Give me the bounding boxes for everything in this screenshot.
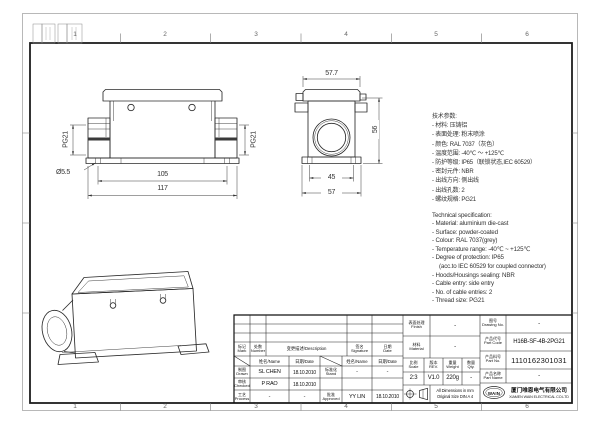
row-process-label: 工艺 Process	[234, 393, 250, 402]
checked-date: 18.10.2010	[289, 382, 320, 388]
zone-number-bottom: 5	[426, 403, 446, 410]
company-name-en: XIAMEN WAIN ELECTRICAL CO.LTD	[506, 395, 572, 399]
material-label: 材料 Material	[403, 343, 430, 352]
iso-guide-pin	[160, 298, 166, 304]
spec-line: (acc.to IEC 60529 for coupled connector)	[432, 263, 546, 272]
side-dimensions	[302, 76, 383, 197]
row-standard-label: 标准化 Stand	[320, 368, 342, 377]
zone-number-top: 4	[336, 31, 356, 38]
th-mark: 标记 Mark	[234, 345, 250, 354]
sh-date2: 日期/Date	[372, 359, 403, 365]
rev-label: 版本 REV.	[424, 361, 443, 370]
th-description: 变更描述/Description	[266, 346, 347, 352]
part-name-en: Part Name	[480, 376, 506, 380]
row-drawn-label: 制图 Drawn	[234, 368, 250, 377]
approved-name: YY LIN	[342, 394, 372, 400]
first-angle-projection-symbol	[404, 388, 428, 399]
dim-label-57-7: 57.7	[316, 70, 347, 77]
spec-line: - Material: aluminium die-cast	[432, 220, 546, 229]
drawing-no-en: Drawing No.	[480, 323, 506, 327]
spec-line: - 密封元件: NBR	[432, 168, 536, 177]
base-flange	[86, 158, 239, 164]
finish-value: -	[430, 323, 480, 329]
engineering-drawing-sheet: { "zones": { "top": ["1","2","3","4","5"…	[0, 0, 600, 424]
th-date: 日期 Date	[372, 345, 403, 354]
spec-line: - Colour: RAL 7037(grey)	[432, 237, 546, 246]
approved-en: Approved	[320, 397, 342, 401]
approved-date: 18.10.2010	[372, 394, 403, 400]
note-line1: All Dimensions in mm	[430, 388, 480, 394]
zone-number-bottom: 4	[336, 403, 356, 410]
spec-line: - 出线孔数: 2	[432, 187, 536, 196]
zone-number-bottom: 3	[246, 403, 266, 410]
part-name-value: -	[506, 373, 572, 379]
drawn-en: Drawn	[234, 372, 250, 376]
note-line2: Original Size DIN A 4	[430, 394, 480, 400]
th-date-en: Date	[372, 349, 403, 353]
dim-label-pg21-left: PG21	[63, 126, 70, 154]
drawn-date: 18.10.2010	[289, 370, 320, 376]
th-mark-en: Mark	[234, 349, 250, 353]
th-number-en: Number	[250, 349, 266, 353]
spec-line: - 材料: 压铸铝	[432, 122, 536, 131]
zone-number-top: 2	[155, 31, 175, 38]
specs-english: Technical specification: - Material: alu…	[432, 212, 546, 307]
standard-en: Stand	[320, 372, 342, 376]
row-approved-label: 批准 Approved	[320, 393, 342, 402]
th-signature: 签名 Signature	[347, 345, 372, 354]
spec-line: - Thread size: PG21	[432, 297, 546, 306]
specs-chinese: 技术参数: - 材料: 压铸铝 - 表面处理: 粉末喷涂 - 颜色: RAL 7…	[432, 113, 536, 205]
spec-line: - 温度范围: -40℃ ～ +125℃	[432, 150, 536, 159]
dimension-notes: All Dimensions in mm Original Size DIN A…	[430, 388, 480, 399]
company-name-cn: 厦门唯恩电气有限公司	[506, 386, 572, 394]
checked-en: Checked	[234, 384, 250, 388]
qty-value: -	[462, 375, 480, 381]
qty-en: Qty.	[462, 365, 480, 369]
zone-number-top: 6	[517, 31, 537, 38]
iso-gland	[38, 307, 76, 355]
material-value: -	[430, 344, 480, 350]
process-name: -	[250, 394, 289, 400]
spec-line: - 表面处理: 粉末喷涂	[432, 131, 536, 140]
dim-label-hole-dia: Ø5.5	[56, 169, 86, 176]
process-en: Process	[234, 397, 250, 401]
scale-value: 2:3	[403, 375, 424, 381]
spec-line: - Hoods/Housings sealing: NBR	[432, 272, 546, 281]
zone-number-top: 1	[65, 31, 85, 38]
sh-name1: 姓名/Name	[250, 359, 289, 365]
screw-hole-left	[128, 104, 134, 110]
sh-date1: 日期/Date	[289, 359, 320, 365]
company-logo-text: WAIN	[484, 391, 504, 396]
part-no-value: 1110162301031	[506, 356, 572, 365]
weight-label: 重量 Weight	[443, 361, 462, 370]
zone-number-bottom: 1	[65, 403, 85, 410]
spec-line: - 出线方向: 侧出线	[432, 177, 536, 186]
spec-line: - Temperature range: -40℃ ~ +125℃	[432, 246, 546, 255]
spec-line: - Surface: powder-coated	[432, 229, 546, 238]
dim-label-pg21-right: PG21	[251, 126, 258, 154]
weight-value: 220g	[443, 375, 462, 381]
front-view	[70, 90, 249, 200]
zone-number-bottom: 6	[517, 403, 537, 410]
th-signature-en: Signature	[347, 349, 372, 353]
standard-date: -	[372, 369, 403, 375]
part-no-label: 产品料号 Part No.	[480, 355, 506, 364]
th-number: 处数 Number	[250, 345, 266, 354]
part-code-value: H16B-SF-4B-2PG21	[506, 339, 572, 345]
drawn-name: SL CHEN	[250, 369, 289, 375]
rev-en: REV.	[424, 365, 443, 369]
part-no-en: Part No.	[480, 359, 506, 363]
scale-label: 比例 Scale	[403, 361, 424, 370]
rev-value: V1.0	[424, 375, 443, 381]
part-code-label: 产品代号 Part Code	[480, 337, 506, 346]
spec-line: - 螺纹规格: PG21	[432, 196, 536, 205]
process-date: -	[289, 394, 320, 400]
dim-label-117: 117	[147, 185, 178, 192]
specs-english-title: Technical specification:	[432, 212, 546, 221]
cable-gland-right	[215, 118, 237, 158]
specs-chinese-title: 技术参数:	[432, 113, 536, 122]
iso-guide-pin	[110, 303, 116, 309]
screw-hole-right	[189, 104, 195, 110]
qty-label: 数量 Qty.	[462, 361, 480, 370]
drawing-no-label: 图号 Drawing No.	[480, 319, 506, 328]
part-name-label: 产品名称 Part Name	[480, 372, 506, 381]
spec-line: - 防护等级: IP65（联锁状态,IEC 60529）	[432, 159, 536, 168]
checked-name: P RAO	[250, 381, 289, 387]
zone-number-bottom: 2	[155, 403, 175, 410]
dim-label-45: 45	[321, 174, 342, 181]
dim-label-105: 105	[147, 171, 178, 178]
spec-line: - Cable entry: side entry	[432, 280, 546, 289]
spec-line: - Degree of protection: IP65	[432, 254, 546, 263]
weight-en: Weight	[443, 365, 462, 369]
material-en: Material	[403, 347, 430, 351]
zone-number-top: 3	[246, 31, 266, 38]
drawing-no-value: -	[506, 321, 572, 327]
standard-name: -	[342, 369, 372, 375]
scale-en: Scale	[403, 365, 424, 369]
connector-opening	[313, 119, 350, 156]
part-code-en: Part Code	[480, 341, 506, 345]
sh-name2: 姓名/Name	[342, 359, 372, 365]
cable-gland-left	[88, 118, 110, 158]
finish-label: 表面处理 Finish	[403, 321, 430, 330]
finish-en: Finish	[403, 325, 430, 329]
row-checked-label: 审核 Checked	[234, 380, 250, 389]
zone-number-top: 5	[426, 31, 446, 38]
dim-label-56: 56	[372, 120, 379, 139]
dim-label-57: 57	[321, 189, 342, 196]
spec-line: - 颜色: RAL 7037（灰色）	[432, 141, 536, 150]
isometric-view	[38, 272, 209, 365]
spec-line: - No. of cable entries: 2	[432, 289, 546, 298]
